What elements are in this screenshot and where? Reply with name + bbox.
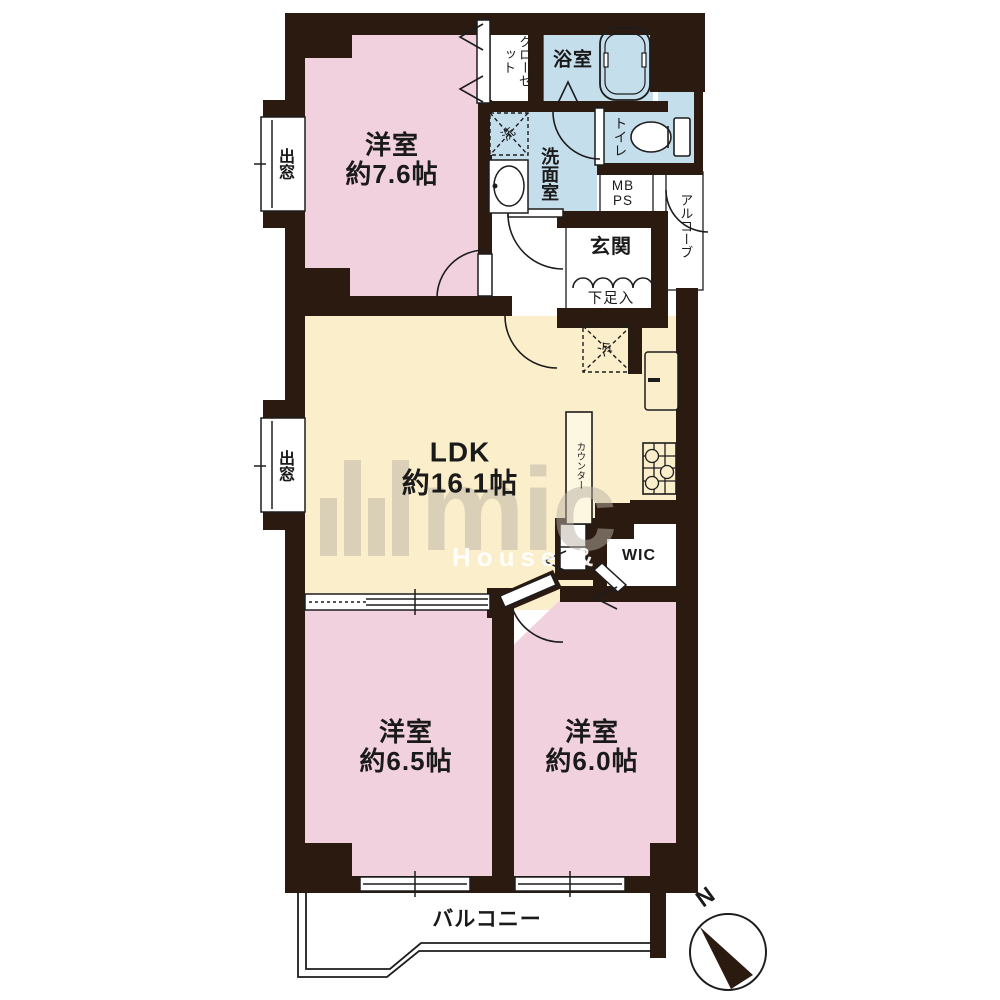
wall bbox=[492, 604, 514, 893]
closet-door-leaf bbox=[477, 20, 490, 103]
label-bay-window-top: 出窓 bbox=[275, 148, 293, 180]
wall bbox=[557, 211, 668, 228]
room-size: 約7.6帖 bbox=[345, 160, 438, 189]
kitchen-sink-icon bbox=[645, 352, 678, 410]
label-wic: WIC bbox=[622, 547, 656, 565]
sliding-partition bbox=[305, 594, 490, 610]
label-ldk: LDK 約16.1帖 bbox=[402, 437, 519, 500]
wall bbox=[597, 163, 703, 175]
label-bedroom-6-5: 洋室 約6.5帖 bbox=[359, 718, 452, 776]
wall bbox=[263, 210, 305, 228]
label-bedroom-7-6: 洋室 約7.6帖 bbox=[345, 131, 438, 189]
wall bbox=[630, 500, 680, 524]
floorplan-drawing bbox=[0, 0, 1000, 1000]
label-mb: MB bbox=[612, 178, 634, 193]
toilet-door-leaf bbox=[595, 108, 604, 165]
floorplan-canvas: mic House & Life 洋室 約7.6帖 LDK 約16.1帖 洋室 … bbox=[0, 0, 1000, 1000]
wall bbox=[263, 100, 305, 118]
wall bbox=[263, 400, 305, 418]
stove-icon bbox=[643, 443, 676, 494]
label-bedroom-6-0: 洋室 約6.0帖 bbox=[545, 718, 638, 776]
room-name: 洋室 bbox=[545, 718, 638, 747]
wall bbox=[676, 288, 698, 893]
vanity-sink-icon bbox=[489, 160, 528, 213]
label-shoe-cabinet: 下足入 bbox=[588, 291, 635, 307]
wall bbox=[628, 312, 642, 374]
label-washroom: 洗面室 bbox=[539, 147, 559, 201]
wall bbox=[650, 891, 666, 958]
bedroom-7-6-door-leaf bbox=[478, 254, 492, 296]
label-entrance: 玄関 bbox=[590, 236, 632, 258]
room-name: LDK bbox=[402, 437, 519, 468]
label-ps: PS bbox=[612, 193, 634, 208]
balcony-rail-outer bbox=[298, 893, 652, 977]
compass-icon bbox=[690, 914, 766, 990]
label-alcove: アルコーブ bbox=[678, 194, 693, 259]
wall bbox=[285, 843, 352, 893]
toilet-icon bbox=[631, 118, 690, 156]
wall bbox=[650, 13, 705, 92]
label-closet: クローゼット bbox=[500, 34, 532, 88]
wall bbox=[557, 308, 668, 328]
wall bbox=[694, 88, 703, 175]
balcony-outline bbox=[298, 893, 652, 977]
wall bbox=[650, 843, 690, 893]
label-balcony: バルコニー bbox=[432, 908, 542, 932]
label-counter: カウンター bbox=[574, 442, 585, 490]
wall bbox=[303, 296, 512, 316]
room-size: 約16.1帖 bbox=[402, 468, 519, 499]
label-toilet: トイレ bbox=[611, 117, 626, 158]
wall bbox=[263, 512, 305, 530]
room-name: 洋室 bbox=[359, 718, 452, 747]
wall bbox=[651, 228, 668, 312]
label-mbps: MB PS bbox=[612, 178, 634, 208]
room-size: 約6.0帖 bbox=[545, 747, 638, 776]
room-name: 洋室 bbox=[345, 131, 438, 160]
label-bay-window-ldk: 出窓 bbox=[275, 450, 293, 482]
label-bath: 浴室 bbox=[553, 49, 593, 70]
room-size: 約6.5帖 bbox=[359, 747, 452, 776]
